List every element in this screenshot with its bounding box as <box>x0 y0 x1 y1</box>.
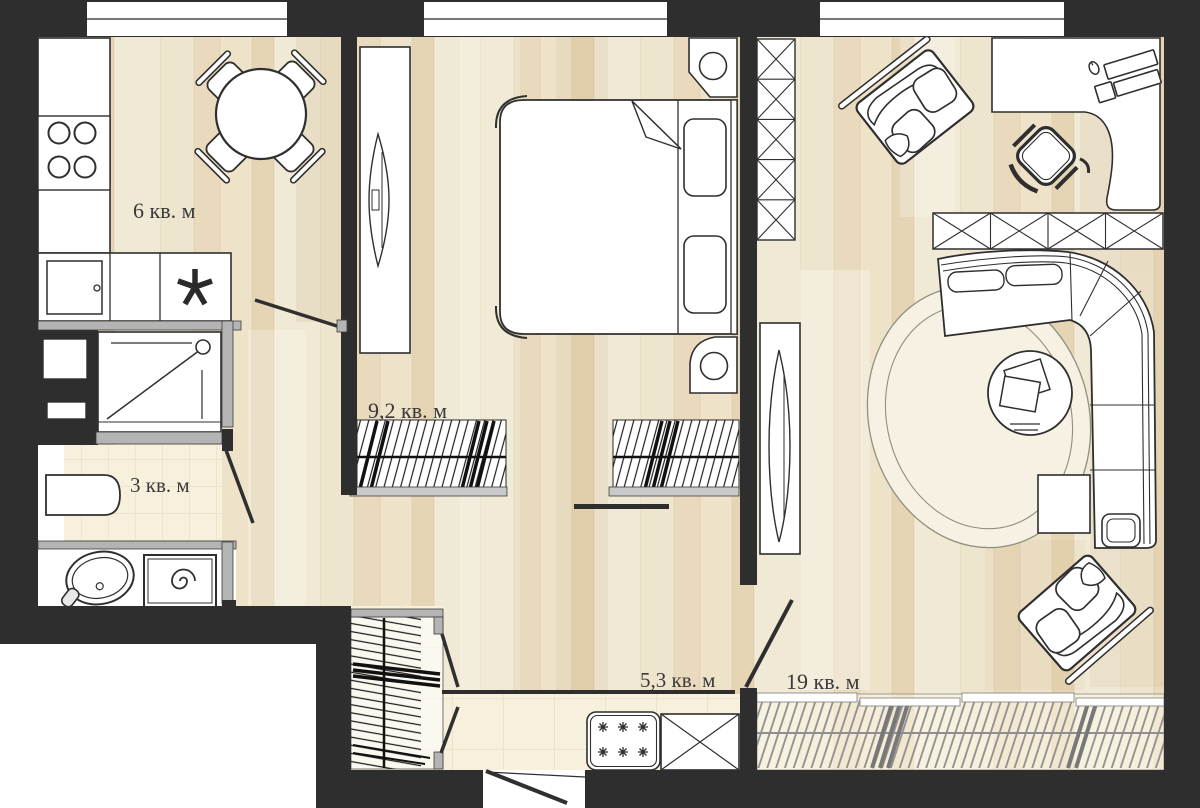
svg-text:9,2 кв. м: 9,2 кв. м <box>368 398 447 423</box>
svg-text:6 кв. м: 6 кв. м <box>133 198 196 223</box>
svg-text:3 кв. м: 3 кв. м <box>130 473 190 497</box>
svg-text:19 кв. м: 19 кв. м <box>786 669 860 694</box>
svg-text:5,3 кв. м: 5,3 кв. м <box>640 668 715 692</box>
